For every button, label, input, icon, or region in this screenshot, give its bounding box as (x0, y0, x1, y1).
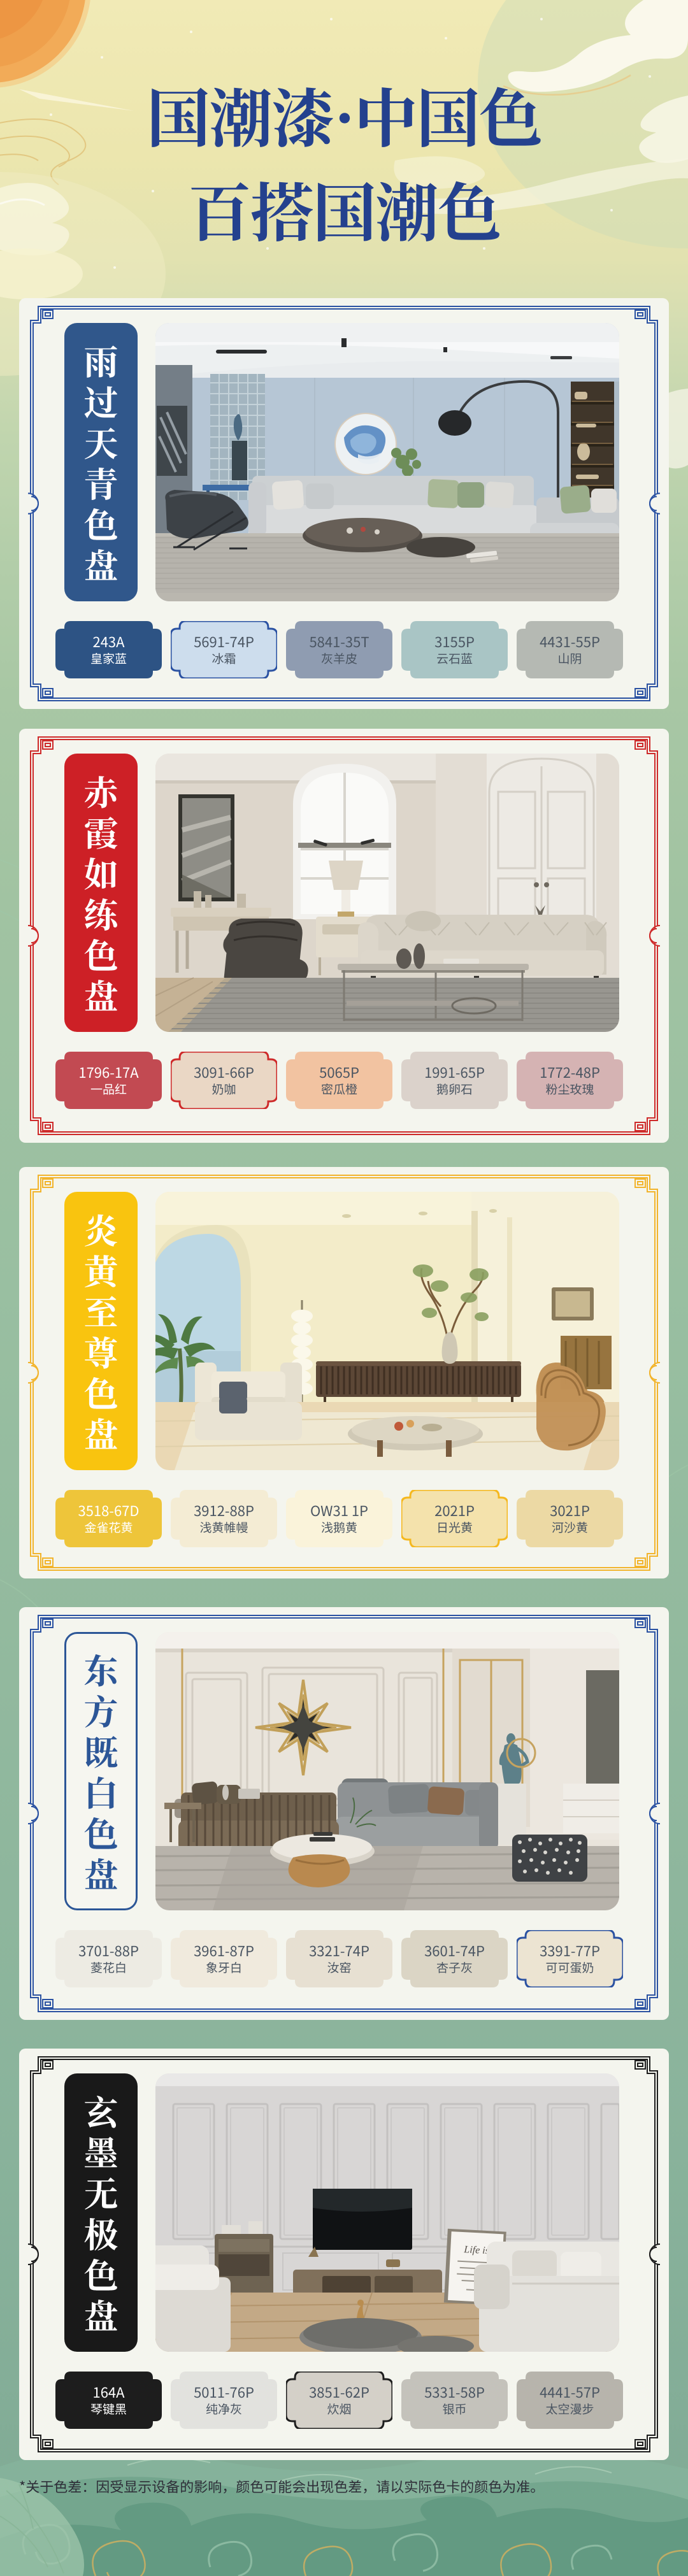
svg-text:Life is: Life is (463, 2244, 489, 2256)
